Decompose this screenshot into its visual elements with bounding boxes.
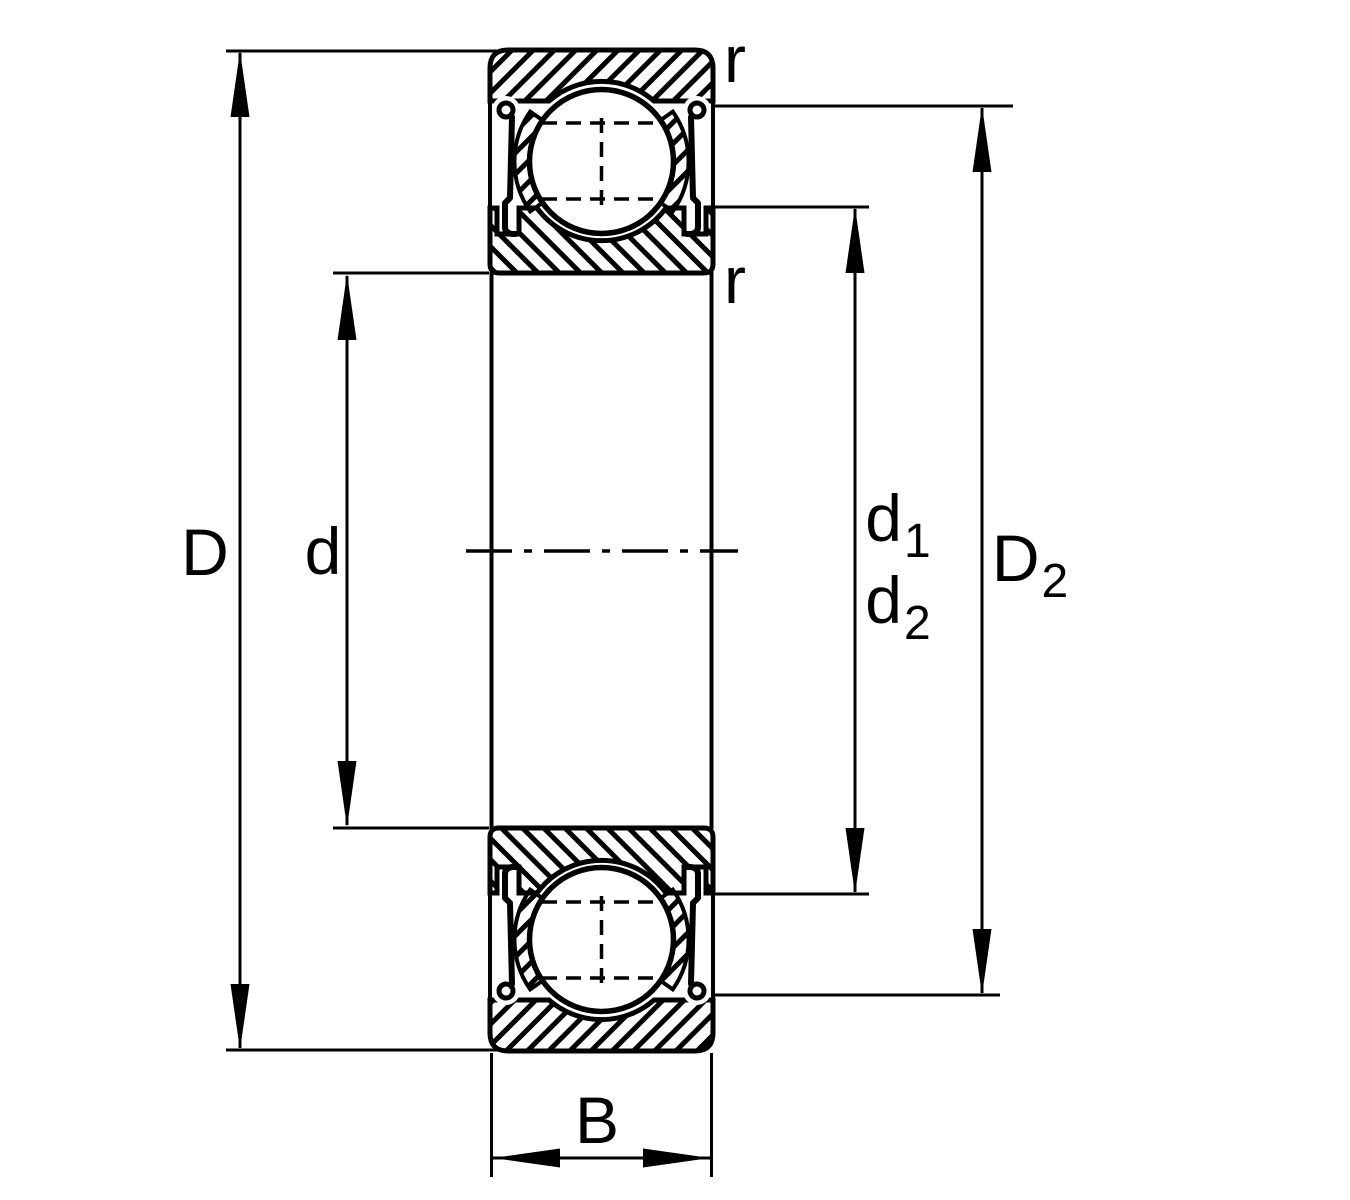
dimension-d	[333, 273, 489, 828]
dim-label-D: D	[181, 519, 231, 585]
bearing-section-top	[490, 50, 713, 273]
dim-label-d: d	[305, 518, 344, 584]
dim-label-D-text: D	[181, 519, 229, 585]
arrowhead-up	[846, 207, 865, 273]
dim-label-d2: d2	[865, 567, 930, 633]
arrowhead-down	[231, 984, 250, 1050]
arrowhead-down	[338, 761, 357, 827]
dimension-D	[226, 51, 506, 1050]
radius-label-r-outer-text: r	[724, 26, 746, 92]
dimension-D2-lines	[715, 106, 1013, 995]
arrowhead-up	[338, 274, 357, 340]
arrowhead-left	[493, 1149, 560, 1168]
dim-label-B: B	[575, 1087, 621, 1153]
radius-label-r-inner: r	[724, 247, 748, 313]
bearing-cross-section-drawing	[0, 0, 1350, 1200]
dim-label-d2-sub: 2	[904, 600, 931, 648]
dim-label-d-text: d	[305, 518, 342, 584]
dimension-D2	[715, 106, 1013, 995]
arrowhead-down	[846, 828, 865, 894]
arrowhead-up	[973, 106, 992, 172]
dim-label-D2: D2	[992, 525, 1068, 591]
dim-label-d2-text: d	[865, 567, 902, 633]
arrowhead-up	[231, 51, 250, 117]
dim-label-D2-text: D	[992, 525, 1040, 591]
bearing-section-bottom	[490, 828, 713, 1051]
dim-label-d1-text: d	[865, 485, 902, 551]
radius-label-r-inner-text: r	[724, 247, 746, 313]
radius-label-r-outer: r	[724, 26, 748, 92]
dimension-D-lines	[226, 51, 506, 1050]
arrowhead-down	[973, 929, 992, 995]
dim-label-D2-sub: 2	[1041, 558, 1068, 606]
dim-label-d1: d1	[865, 485, 930, 551]
arrowhead-right	[643, 1149, 710, 1168]
dimension-d-lines	[333, 273, 489, 828]
dim-label-d1-sub: 1	[904, 518, 931, 566]
bearing-drawing-page: D d d1 d2 D2 B r r	[0, 0, 1350, 1200]
dim-label-B-text: B	[575, 1087, 619, 1153]
